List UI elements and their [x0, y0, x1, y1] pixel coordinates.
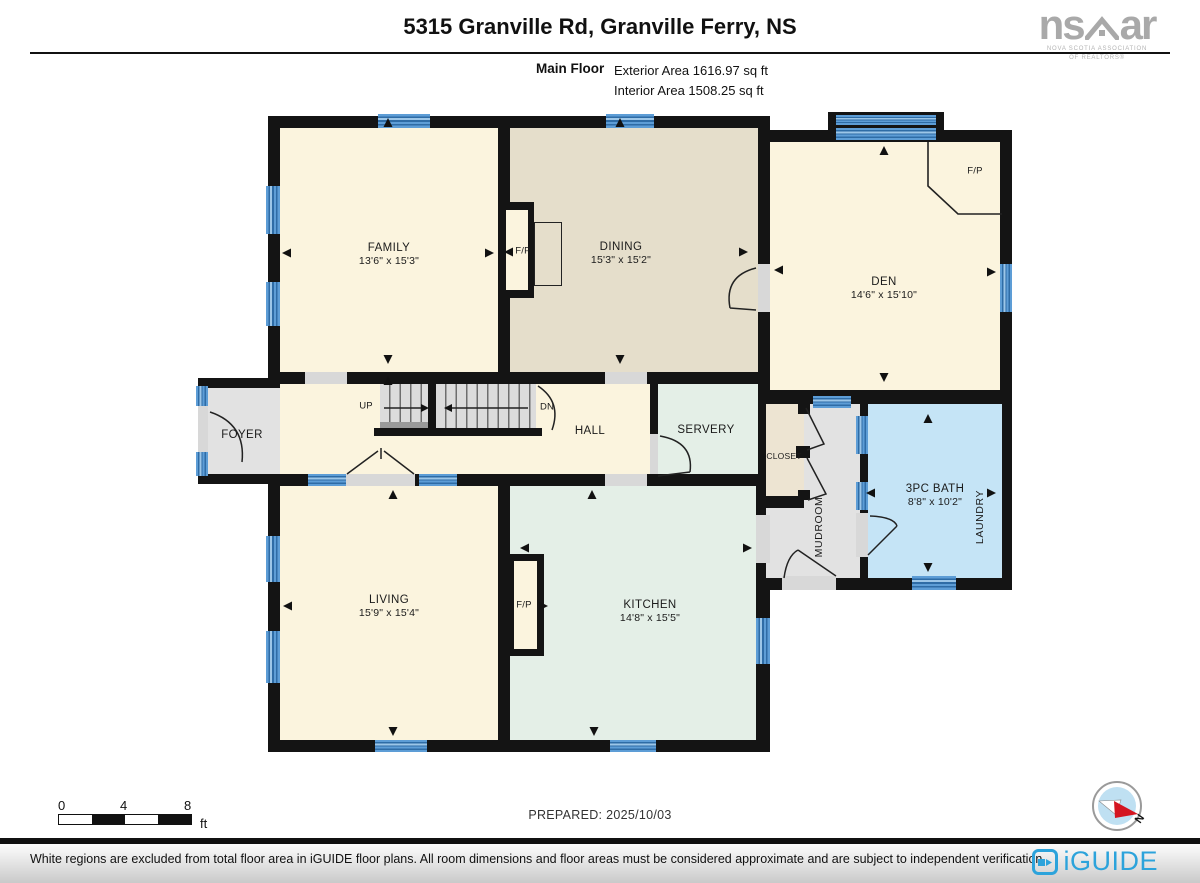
label-servery: SERVERY: [677, 424, 734, 436]
measurement-arrows: [282, 118, 996, 736]
label-living: LIVING: [369, 594, 409, 606]
iguide-icon: [1032, 849, 1058, 875]
label-bath: 3PC BATH: [906, 483, 965, 495]
label-kitchen: KITCHEN: [623, 599, 676, 611]
label-stairs-up: UP: [359, 401, 373, 412]
door-arc-dining-den: [729, 268, 756, 310]
door-arc-bath: [868, 516, 897, 555]
label-den-dims: 14'6" x 15'10": [851, 289, 917, 301]
label-family-dims: 13'6" x 15'3": [359, 255, 419, 267]
plan-symbol-overlay: [0, 0, 1200, 800]
door-arc-servery: [658, 436, 690, 476]
iguide-wordmark: iGUIDE: [1063, 846, 1158, 877]
stairs-up-arrowhead: [421, 404, 429, 412]
label-den: DEN: [871, 276, 896, 288]
door-french-symbol: [347, 448, 414, 474]
label-bath-dims: 8'8" x 10'2": [908, 496, 962, 508]
label-kitchen-dims: 14'8" x 15'5": [620, 612, 680, 624]
label-family: FAMILY: [368, 242, 410, 254]
fireplace-den-corner: [928, 142, 1002, 214]
compass: [1086, 776, 1150, 840]
label-laundry: LAUNDRY: [974, 490, 986, 544]
compass-icon: [1086, 776, 1150, 840]
label-closet: CLOSET: [766, 451, 801, 461]
label-dining: DINING: [600, 241, 643, 253]
footer: White regions are excluded from total fl…: [0, 844, 1200, 883]
label-mudroom: MUDROOM: [813, 497, 825, 558]
label-dining-dims: 15'3" x 15'2": [591, 254, 651, 266]
door-bifold-closet: [806, 408, 826, 500]
label-fireplace-family: F/P: [515, 246, 530, 257]
floorplan-page: 5315 Granville Rd, Granville Ferry, NS n…: [0, 0, 1200, 883]
footer-disclaimer: White regions are excluded from total fl…: [30, 852, 1046, 866]
label-living-dims: 15'9" x 15'4": [359, 607, 419, 619]
door-arc-mudroom-exterior: [784, 550, 836, 578]
iguide-logo: iGUIDE: [1032, 846, 1158, 877]
label-foyer: FOYER: [221, 429, 263, 441]
label-stairs-down: DN: [540, 402, 554, 413]
label-fireplace-den: F/P: [967, 166, 982, 177]
stairs-down-arrowhead: [444, 404, 452, 412]
label-hall: HALL: [575, 425, 605, 437]
prepared-date: PREPARED: 2025/10/03: [0, 808, 1200, 822]
label-fireplace-kitchen: F/P: [516, 600, 531, 611]
